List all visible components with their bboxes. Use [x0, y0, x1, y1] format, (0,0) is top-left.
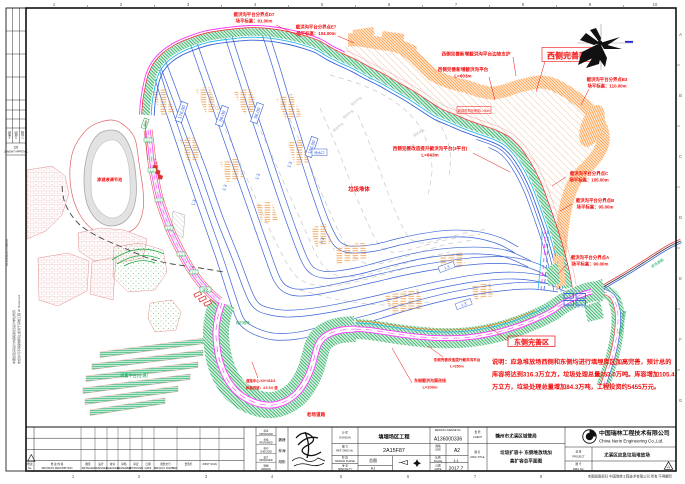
svg-text:1:2: 1:2	[150, 168, 154, 172]
svg-text:绿化: 绿化	[202, 287, 209, 292]
svg-text:东侧完善改造提升截洪沟平台: 东侧完善改造提升截洪沟平台	[434, 357, 481, 362]
svg-text:A1: A1	[371, 467, 375, 471]
svg-text:DATE: DATE	[145, 466, 152, 470]
svg-text:设计: 设计	[98, 462, 104, 466]
svg-text:批准文号: 批准文号	[160, 462, 171, 466]
svg-text:图 号: 图 号	[576, 462, 582, 466]
svg-text:L=643m: L=643m	[421, 153, 438, 158]
svg-text:China Nerin Engineering Co.,Lt: China Nerin Engineering Co.,Ltd.	[599, 438, 663, 443]
svg-text:2 日期: 2 日期	[21, 131, 25, 139]
svg-text:截洪沟平台分界点A: 截洪沟平台分界点A	[571, 254, 610, 261]
svg-text:调蓄平台(在建): 调蓄平台(在建)	[120, 372, 149, 379]
svg-text:L=200m: L=200m	[422, 385, 437, 390]
svg-text:REVISION DESCRIPTION: REVISION DESCRIPTION	[42, 466, 73, 470]
svg-text:G: G	[679, 398, 682, 403]
svg-text:未经许可不得复制转让或用于其他工程 W. Reserved: 未经许可不得复制转让或用于其他工程 W. Reserved	[16, 295, 21, 364]
svg-text:B: B	[679, 93, 682, 98]
svg-text:胡彬: 胡彬	[278, 459, 286, 464]
svg-text:东侧完善区: 东侧完善区	[514, 337, 549, 346]
svg-text:专 业: 专 业	[342, 464, 348, 468]
svg-text:西侧完善新增截洪沟平台: 西侧完善新增截洪沟平台	[438, 66, 489, 73]
svg-text:CHECKED: CHECKED	[260, 450, 272, 453]
svg-text:林海: 林海	[278, 448, 286, 453]
svg-text:校对: 校对	[110, 462, 116, 466]
svg-text:4 审核: 4 审核	[8, 131, 12, 139]
svg-text:SIZE: SIZE	[435, 448, 441, 452]
svg-text:DETAILED: DETAILED	[82, 466, 95, 470]
svg-text:JOB/DWT APPROVAL: JOB/DWT APPROVAL	[4, 151, 29, 154]
svg-text:DESIGNED: DESIGNED	[259, 459, 272, 462]
svg-text:场平标高：91.00m: 场平标高：91.00m	[236, 18, 273, 25]
svg-text:临时堆场: 临时堆场	[236, 320, 250, 325]
svg-text:修改: 修改	[27, 462, 33, 466]
svg-text:高扩容总平面图: 高扩容总平面图	[510, 458, 543, 465]
svg-text:会签栏: 会签栏	[185, 462, 193, 466]
svg-text:分 区: 分 区	[342, 431, 348, 435]
svg-text:本图纸及其设计内容版权归设计单位所有: 本图纸及其设计内容版权归设计单位所有	[11, 310, 16, 364]
svg-text:万立方，垃圾处理总量增加84.3万吨，工程投资约5455万元: 万立方，垃圾处理总量增加84.3万吨，工程投资约5455万元。	[491, 383, 660, 391]
svg-text:CLIENT: CLIENT	[473, 435, 483, 439]
svg-text:C: C	[679, 154, 682, 159]
svg-text:10: 10	[653, 2, 658, 7]
svg-text:DESIGN PHASE: DESIGN PHASE	[335, 459, 355, 463]
svg-text:DWG TITLE: DWG TITLE	[470, 455, 484, 459]
svg-text:道路中心 K0+318.5: 道路中心 K0+318.5	[246, 378, 275, 383]
svg-text:垃圾堆体: 垃圾堆体	[348, 185, 370, 193]
svg-text:阶 段: 阶 段	[342, 456, 348, 460]
svg-text:赣州市尤溪区城管局: 赣州市尤溪区城管局	[495, 433, 537, 440]
svg-text:A136000336: A136000336	[434, 436, 463, 442]
svg-text:PROJECT: PROJECT	[572, 455, 585, 459]
svg-text:项 目: 项 目	[576, 450, 582, 454]
svg-text:APPROVED: APPROVED	[129, 466, 144, 470]
svg-text:图签: 图签	[85, 462, 91, 466]
svg-text:场平标高：104.00m: 场平标高：104.00m	[296, 30, 335, 37]
svg-text:图 名: 图 名	[475, 450, 481, 454]
svg-text:1:2: 1:2	[179, 252, 183, 256]
svg-text:No.: No.	[28, 466, 32, 470]
svg-text:1:2: 1:2	[167, 226, 171, 230]
svg-text:L=250m: L=250m	[450, 365, 464, 369]
svg-text:日期: 日期	[145, 462, 151, 466]
svg-text:截洪沟平台分界点B: 截洪沟平台分界点B	[576, 197, 614, 204]
svg-text:西侧完善新增截洪沟平台边坡支护: 西侧完善新增截洪沟平台边坡支护	[442, 51, 511, 58]
svg-text:规格: 规格	[435, 444, 441, 448]
svg-text:东侧截洪沟渠改线: 东侧截洪沟渠改线	[414, 377, 446, 383]
svg-text:DRAWN: DRAWN	[261, 468, 271, 471]
svg-text:1:1: 1:1	[454, 459, 459, 463]
svg-text:雨水口: 雨水口	[314, 150, 324, 155]
svg-text:委 托: 委 托	[475, 430, 481, 434]
svg-text:3 校核: 3 校核	[14, 131, 18, 139]
svg-text:DWG No.: DWG No.	[573, 467, 584, 471]
svg-text:2A15F87: 2A15F87	[383, 448, 405, 454]
svg-text:DESIGN LICENSE No.: DESIGN LICENSE No.	[435, 428, 462, 432]
svg-text:总图: 总图	[369, 457, 377, 463]
svg-text:场平标高：90.00m: 场平标高：90.00m	[572, 261, 609, 268]
svg-text:审定: 审定	[133, 462, 139, 466]
svg-text:L=603m: L=603m	[454, 74, 471, 79]
svg-text:JOINT SIGN: JOINT SIGN	[202, 462, 217, 466]
svg-text:修 改 内 容: 修 改 内 容	[51, 462, 64, 466]
svg-text:截洪沟平台分界点D7: 截洪沟平台分界点D7	[234, 11, 275, 18]
svg-text:图 号: 图 号	[342, 445, 348, 449]
svg-text:填埋场区工程: 填埋场区工程	[378, 432, 410, 440]
svg-text:魏峰: 魏峰	[278, 437, 286, 442]
svg-text:新增防风化喷浆L=90m: 新增防风化喷浆L=90m	[458, 108, 490, 113]
svg-text:E: E	[679, 276, 682, 281]
svg-text:截洪沟平台分界点C: 截洪沟平台分界点C	[570, 170, 609, 177]
svg-text:审核: 审核	[121, 462, 127, 466]
svg-text:REF. DWG No.: REF. DWG No.	[336, 449, 354, 453]
svg-text:SPECIALTY: SPECIALTY	[338, 467, 352, 471]
svg-text:1:2: 1:2	[157, 198, 161, 202]
svg-text:会签: 会签	[14, 145, 19, 149]
svg-text:截洪沟平台分界点E7: 截洪沟平台分界点E7	[296, 24, 337, 31]
svg-text:1:2: 1:2	[192, 270, 196, 274]
svg-text:A: A	[679, 32, 682, 37]
svg-text:场平标高：95.00m: 场平标高：95.00m	[577, 204, 614, 211]
svg-text:D: D	[679, 215, 682, 220]
svg-text:本图纸版权归 中国瑞林工程技术有限公司 所有 不得翻印: 本图纸版权归 中国瑞林工程技术有限公司 所有 不得翻印	[588, 474, 673, 479]
svg-text:截洪沟平台分界点B3: 截洪沟平台分界点B3	[587, 76, 628, 83]
svg-text:西侧完善改造提升截洪沟平台(3平台): 西侧完善改造提升截洪沟平台(3平台)	[393, 145, 468, 152]
svg-text:尤溪区应急垃圾堆放场: 尤溪区应急垃圾堆放场	[604, 452, 650, 459]
svg-text:说明：应急堆放场西侧和东侧均进行填埋库区加高完善，预计总的: 说明：应急堆放场西侧和东侧均进行填埋库区加高完善，预计总的	[492, 358, 671, 366]
svg-text:库容将达到316.3万立方，垃圾处理总量253.0万吨。库容: 库容将达到316.3万立方，垃圾处理总量253.0万吨。库容增加105.4	[492, 371, 675, 379]
svg-text:场平标高：105.00m: 场平标高：105.00m	[569, 177, 608, 184]
svg-text:A: A	[667, 464, 670, 469]
svg-text:REF.DOC.NUMBER: REF.DOC.NUMBER	[154, 466, 177, 470]
svg-text:APPROVED: APPROVED	[259, 433, 273, 436]
svg-text:1:2: 1:2	[146, 138, 150, 142]
svg-text:DATE: DATE	[435, 467, 442, 471]
svg-text:F: F	[679, 337, 682, 342]
svg-text:垃圾扩容十 东侧堆放场加: 垃圾扩容十 东侧堆放场加	[500, 449, 552, 456]
svg-text:A2: A2	[454, 448, 460, 454]
svg-text:渗滤液调节池: 渗滤液调节池	[97, 176, 123, 183]
svg-text:REVIEWED: REVIEWED	[259, 442, 273, 445]
svg-text:中国瑞林工程技术有限公司: 中国瑞林工程技术有限公司	[599, 429, 670, 437]
svg-text:2017.7: 2017.7	[449, 465, 464, 471]
svg-text:DIVISION: DIVISION	[339, 436, 351, 440]
svg-text:场平标高：110.00m: 场平标高：110.00m	[587, 83, 626, 90]
svg-text:老场道路: 老场道路	[306, 411, 326, 418]
svg-text:纵坡线坡：4.0 5.0 道: 纵坡线坡：4.0 5.0 道	[246, 385, 278, 390]
svg-text:SCALE: SCALE	[434, 459, 443, 463]
